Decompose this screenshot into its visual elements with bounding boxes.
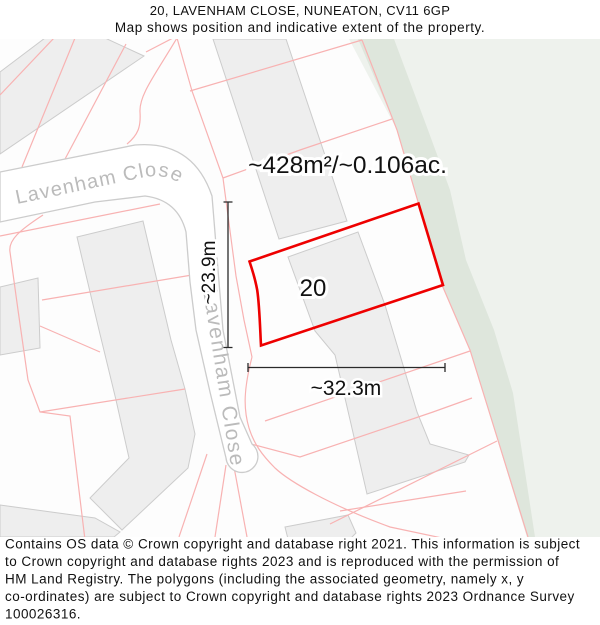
svg-text:100026316.: 100026316. [5,607,81,622]
svg-text:20: 20 [300,275,327,302]
svg-text:co-ordinates) are subject to C: co-ordinates) are subject to Crown copyr… [5,589,575,604]
svg-text:Contains OS data © Crown copyr: Contains OS data © Crown copyright and d… [5,537,580,552]
svg-text:Map shows position and indicat: Map shows position and indicative extent… [115,20,485,35]
svg-text:~23.9m: ~23.9m [199,241,220,305]
svg-text:~428m²/~0.106ac.: ~428m²/~0.106ac. [248,152,447,179]
svg-text:20, LAVENHAM CLOSE, NUNEATON,: 20, LAVENHAM CLOSE, NUNEATON, CV11 6GP [150,3,451,18]
svg-text:to Crown copyright and databas: to Crown copyright and database rights 2… [5,554,559,569]
svg-text:HM Land Registry. The polygons: HM Land Registry. The polygons (includin… [5,572,524,587]
svg-text:~32.3m: ~32.3m [311,377,382,400]
